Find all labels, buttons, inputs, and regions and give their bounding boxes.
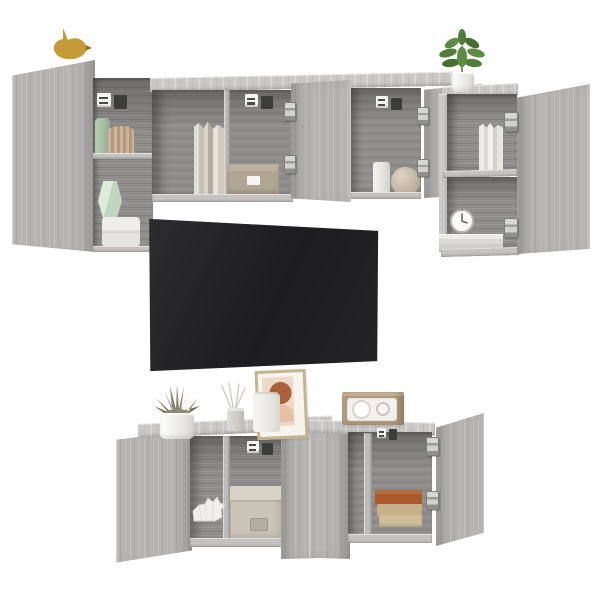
bracket-plate xyxy=(247,441,259,453)
white-bowl-stack xyxy=(102,217,140,247)
lower-right-cabinet-door-open xyxy=(436,413,484,546)
bracket-block xyxy=(261,96,273,110)
diffuser-bottle xyxy=(227,408,244,431)
stacked-books xyxy=(375,490,422,532)
bracket-slot xyxy=(247,102,255,104)
retro-radio xyxy=(342,392,404,425)
bracket-plate xyxy=(376,96,388,108)
tv-screen xyxy=(148,218,380,372)
radio-speaker-knob xyxy=(352,400,371,419)
fabric-box-label-plate xyxy=(250,518,268,531)
bracket-slot xyxy=(378,99,385,101)
lower-left-cabinet-door-open xyxy=(116,429,192,564)
upper-left-cabinet-door xyxy=(12,58,95,254)
hinge xyxy=(426,437,439,456)
succulent-pot xyxy=(160,413,194,439)
bracket-slot xyxy=(249,449,256,451)
bracket-slot xyxy=(379,435,385,437)
hinge xyxy=(284,102,296,121)
pleated-paper-fan xyxy=(108,126,134,154)
cabinet-bottom-edge xyxy=(152,194,293,202)
lower-right-cabinet-door-closed xyxy=(309,426,350,559)
product-photo-tv-wall-unit xyxy=(0,0,600,600)
book-spine xyxy=(379,515,422,527)
bracket-plate xyxy=(245,94,258,107)
cabinet-divider xyxy=(364,433,372,541)
gold-bird-figurine xyxy=(50,27,94,63)
plant-pot xyxy=(452,72,474,92)
reed-diffuser xyxy=(219,382,249,432)
bracket-block xyxy=(114,95,127,110)
wall-bracket xyxy=(377,428,397,441)
bird-icon xyxy=(50,27,94,63)
wall-bracket xyxy=(97,93,127,110)
hinge xyxy=(504,218,518,238)
hinge xyxy=(417,159,429,177)
hinge xyxy=(426,491,439,510)
hinge xyxy=(417,107,429,125)
drawer-box-label xyxy=(247,176,260,185)
book-spine xyxy=(375,490,422,505)
wall-bracket xyxy=(376,96,402,111)
bracket-block xyxy=(262,443,273,456)
white-cylinder-vase xyxy=(373,162,390,194)
hinge xyxy=(284,155,296,174)
shelf-bottom-edge xyxy=(93,246,153,252)
drawer-box xyxy=(227,164,279,194)
succulent-plant xyxy=(150,384,204,440)
bracket-slot xyxy=(379,431,385,433)
wall-bracket xyxy=(245,94,273,110)
cabinet-bottom-edge xyxy=(348,534,432,543)
bracket-block xyxy=(389,429,397,440)
rhino-icon xyxy=(192,494,226,524)
cabinet-bottom-edge xyxy=(351,192,421,199)
bracket-slot xyxy=(99,102,107,104)
fabric-storage-box xyxy=(230,486,285,540)
bracket-slot xyxy=(378,104,385,106)
upper-mid-cabinet-door-open xyxy=(291,80,351,202)
radio-dial-knob xyxy=(376,402,390,416)
bracket-plate xyxy=(377,428,386,438)
bracket-slot xyxy=(99,97,107,99)
books-row xyxy=(194,120,224,196)
bracket-slot xyxy=(249,444,256,446)
cabinet-divider xyxy=(223,436,230,542)
bracket-plate xyxy=(97,93,111,107)
hinge xyxy=(504,112,518,132)
upper-right-cabinet-right-door-open xyxy=(517,84,590,254)
white-books xyxy=(479,122,503,172)
white-canister xyxy=(253,392,280,432)
bracket-slot xyxy=(247,98,255,100)
cabinet-bottom-edge xyxy=(441,247,519,257)
wall-bracket xyxy=(247,441,273,456)
origami-rhino-figurine xyxy=(192,494,226,524)
shelf-edge xyxy=(93,153,153,159)
bracket-block xyxy=(391,98,402,111)
